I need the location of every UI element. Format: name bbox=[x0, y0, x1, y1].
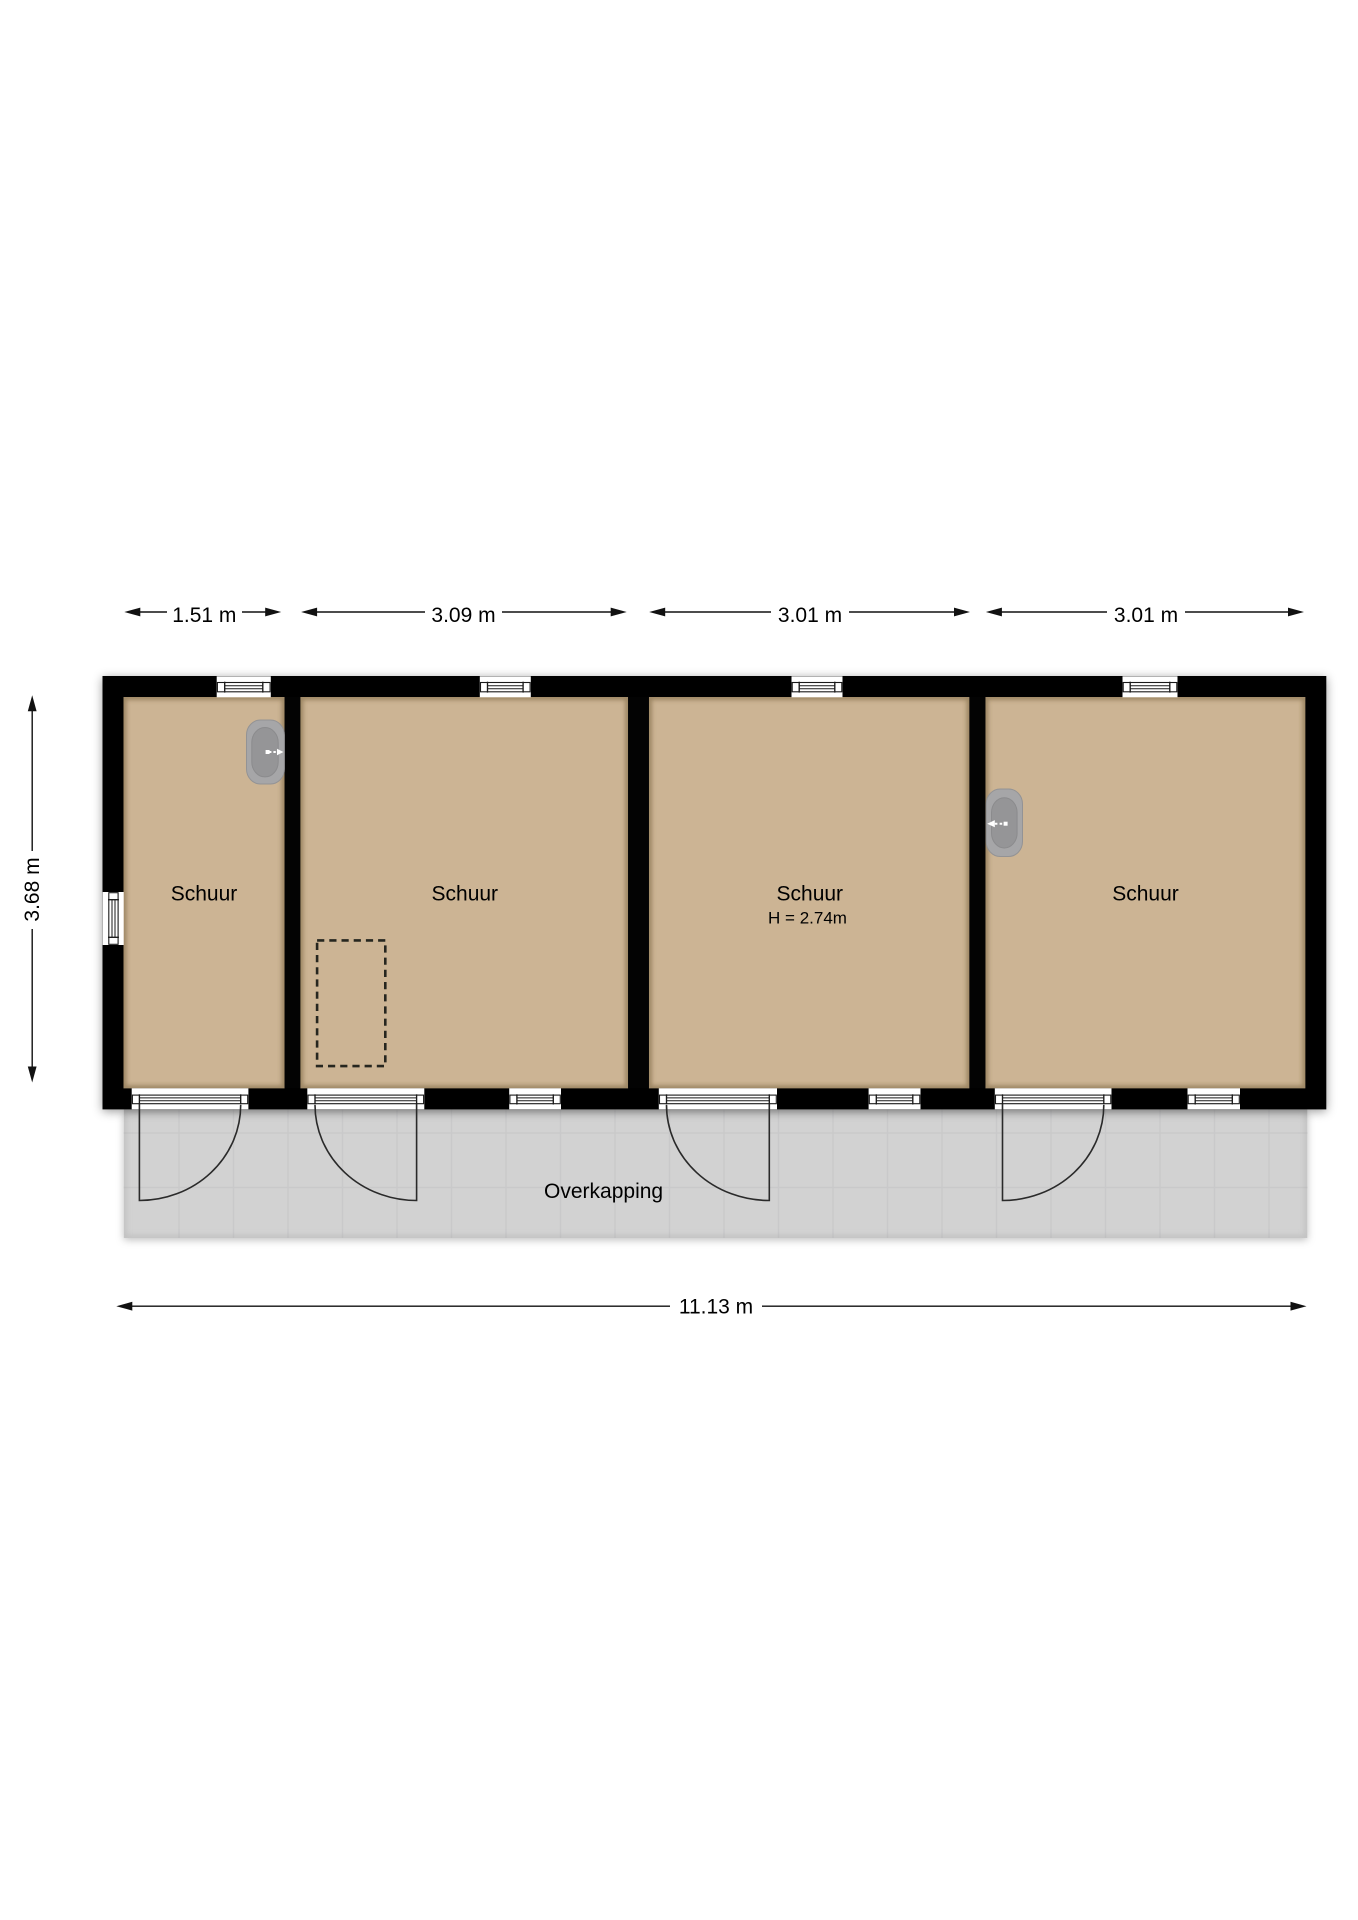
svg-text:3.01 m: 3.01 m bbox=[1114, 604, 1178, 627]
svg-text:11.13 m: 11.13 m bbox=[679, 1296, 753, 1319]
svg-text:Schuur: Schuur bbox=[171, 883, 238, 906]
svg-text:Overkapping: Overkapping bbox=[544, 1180, 663, 1203]
svg-text:3.01 m: 3.01 m bbox=[778, 604, 842, 627]
svg-text:1.51 m: 1.51 m bbox=[172, 604, 236, 627]
svg-text:Schuur: Schuur bbox=[777, 883, 844, 906]
svg-text:H = 2.74m: H = 2.74m bbox=[768, 909, 847, 928]
svg-text:3.68 m: 3.68 m bbox=[21, 857, 44, 921]
svg-text:3.09 m: 3.09 m bbox=[431, 604, 495, 627]
svg-text:Schuur: Schuur bbox=[432, 883, 499, 906]
svg-text:Schuur: Schuur bbox=[1112, 883, 1179, 906]
